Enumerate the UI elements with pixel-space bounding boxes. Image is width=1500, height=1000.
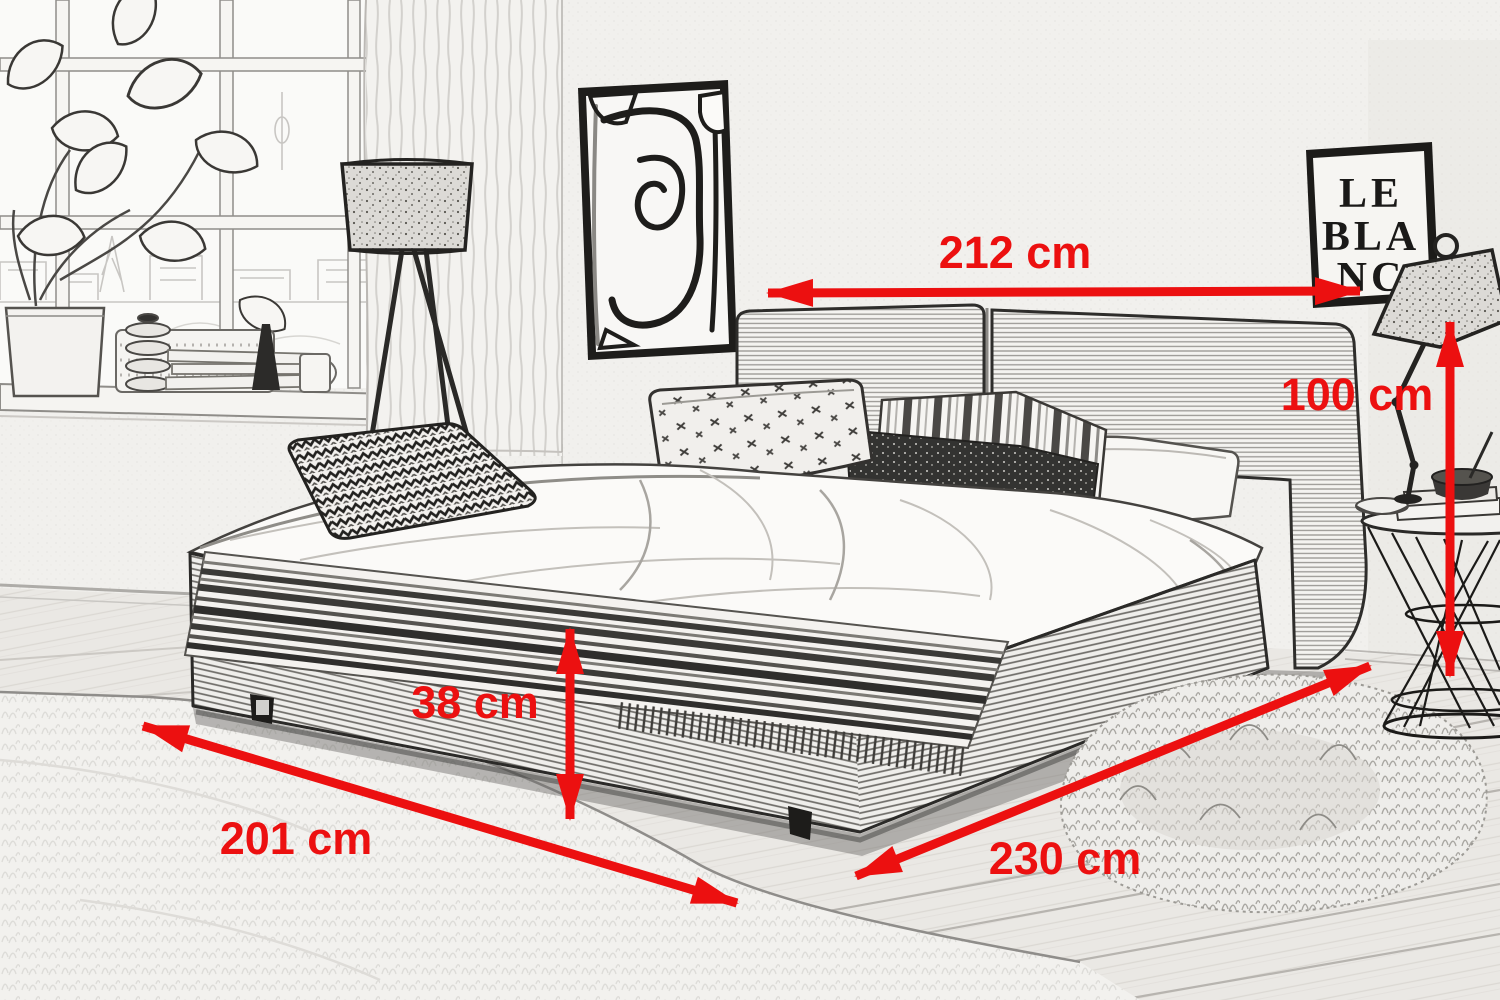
ring-vase [126,314,170,391]
wall-art [578,80,737,360]
sketch-canvas: LE BLA NC [0,0,1500,1000]
dimension-arrow-width-top [768,291,1360,293]
bed-dimension-diagram: LE BLA NC [0,0,1500,1000]
mug [300,354,336,392]
book-stack [166,350,318,389]
poster-line-2: BLA [1322,214,1420,260]
poster-line-1: LE [1339,171,1403,217]
